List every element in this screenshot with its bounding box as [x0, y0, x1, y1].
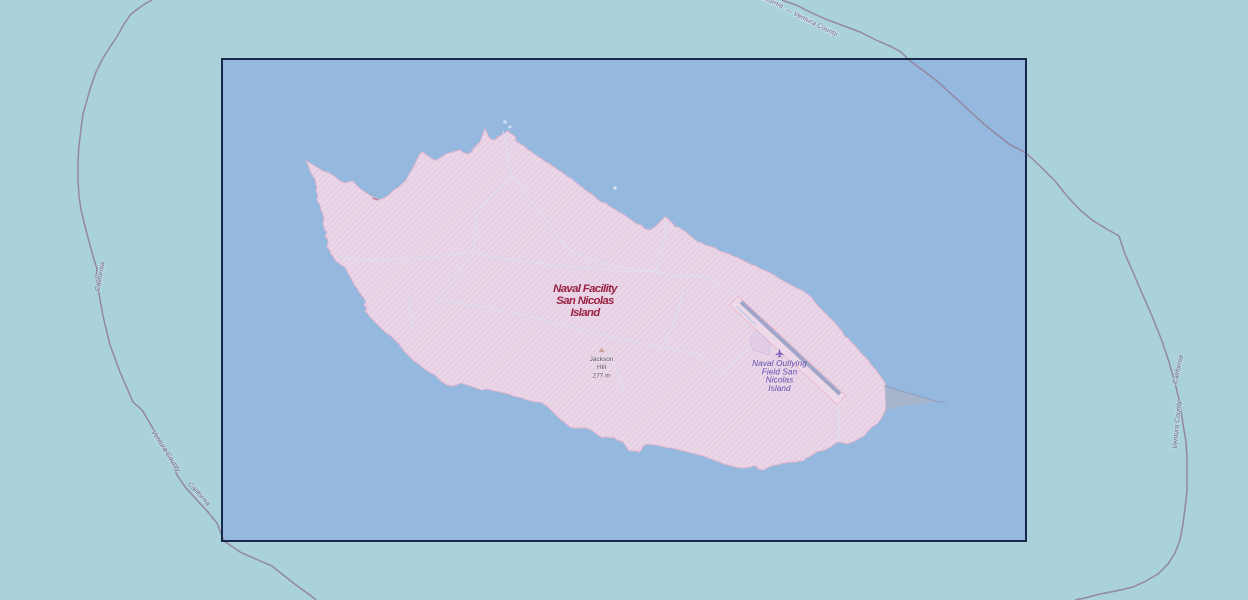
svg-text:Hill: Hill	[597, 364, 607, 371]
svg-text:277 m: 277 m	[592, 373, 610, 380]
svg-text:Naval Facility: Naval Facility	[553, 283, 618, 295]
svg-text:Jackson: Jackson	[590, 356, 614, 363]
svg-text:Island: Island	[570, 307, 601, 319]
svg-text:San Nicolas: San Nicolas	[556, 295, 614, 307]
svg-text:Island: Island	[768, 384, 791, 393]
